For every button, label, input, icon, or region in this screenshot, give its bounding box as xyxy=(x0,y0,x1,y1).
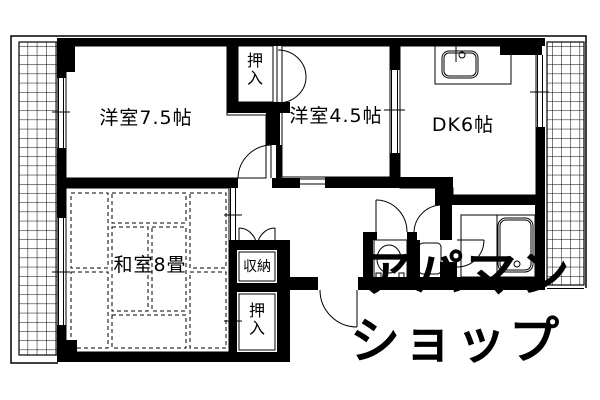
balcony-left xyxy=(19,42,57,355)
room-label-western-4-5: 洋室4.5帖 xyxy=(289,105,382,127)
watermark-line2: ショップ xyxy=(350,312,562,370)
floorplan-page: アパマン ショップ xyxy=(0,0,600,400)
balcony-right xyxy=(547,42,584,289)
floorplan: アパマン ショップ xyxy=(0,0,600,400)
door-arc-icon xyxy=(414,205,442,233)
balcony-hatch-icon xyxy=(547,42,584,285)
room-label-japanese-8: 和室8畳 xyxy=(113,254,186,276)
door-arc-icon xyxy=(376,200,407,232)
room-label-closet-bottom: 押入 xyxy=(249,301,265,338)
balcony-hatch-icon xyxy=(19,42,57,355)
room-label-western-7-5: 洋室7.5帖 xyxy=(99,107,192,129)
room-label-closet-top: 押入 xyxy=(247,51,263,88)
room-label-storage: 収納 xyxy=(243,259,271,275)
room-label-dk: DK6帖 xyxy=(432,114,494,136)
